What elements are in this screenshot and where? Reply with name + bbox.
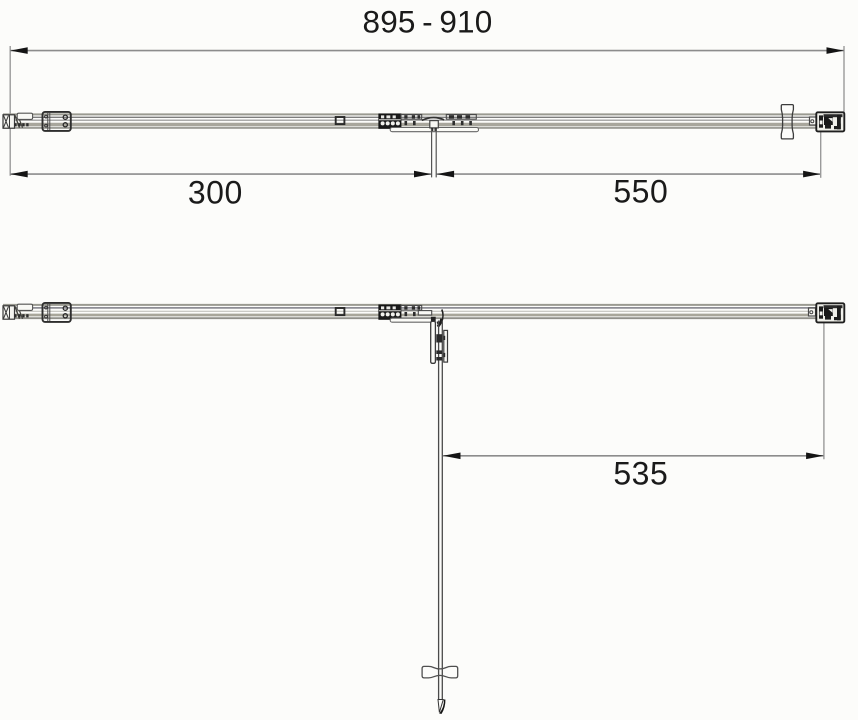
- svg-text:535: 535: [613, 455, 668, 491]
- svg-text:550: 550: [613, 173, 668, 209]
- svg-text:300: 300: [188, 174, 243, 210]
- svg-text:895 - 910: 895 - 910: [362, 4, 492, 40]
